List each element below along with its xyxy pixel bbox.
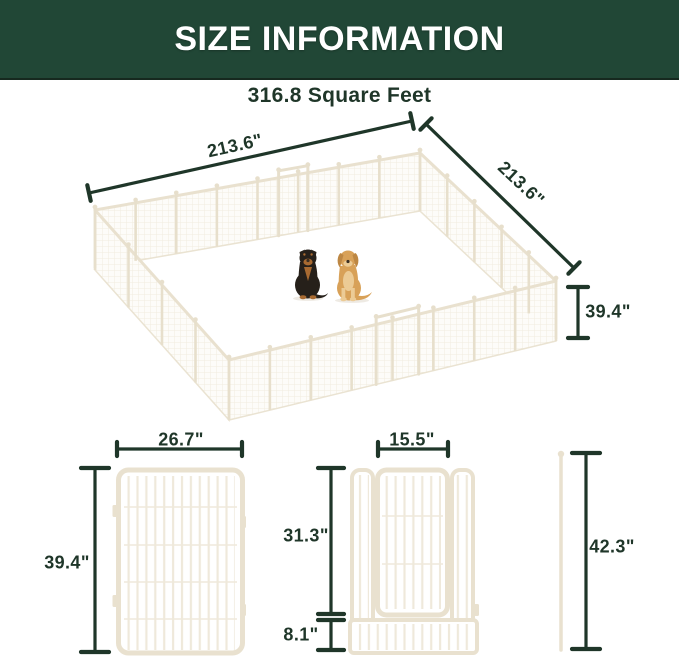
dimension-line-bottom-height	[318, 620, 344, 650]
ground-stake	[558, 451, 564, 650]
dim-label-pen-height: 39.4"	[585, 302, 631, 323]
dim-label-bottom-height: 8.1"	[283, 625, 318, 646]
dim-label-door-width: 15.5"	[389, 430, 435, 451]
dim-label-door-height: 31.3"	[283, 526, 329, 547]
golden-retriever-dog-icon	[335, 251, 372, 303]
door-panel-diagram	[350, 470, 479, 653]
dim-label-stake-height: 42.3"	[589, 537, 635, 558]
dim-label-panel-width: 26.7"	[158, 430, 204, 451]
diagram-canvas	[0, 0, 679, 656]
panel-diagram	[113, 470, 247, 653]
pen-isometric-view	[93, 148, 559, 420]
dim-label-panel-height: 39.4"	[44, 553, 90, 574]
rottweiler-dog-icon	[293, 250, 328, 301]
size-infographic: SIZE INFORMATION 316.8 Square Feet	[0, 0, 679, 656]
